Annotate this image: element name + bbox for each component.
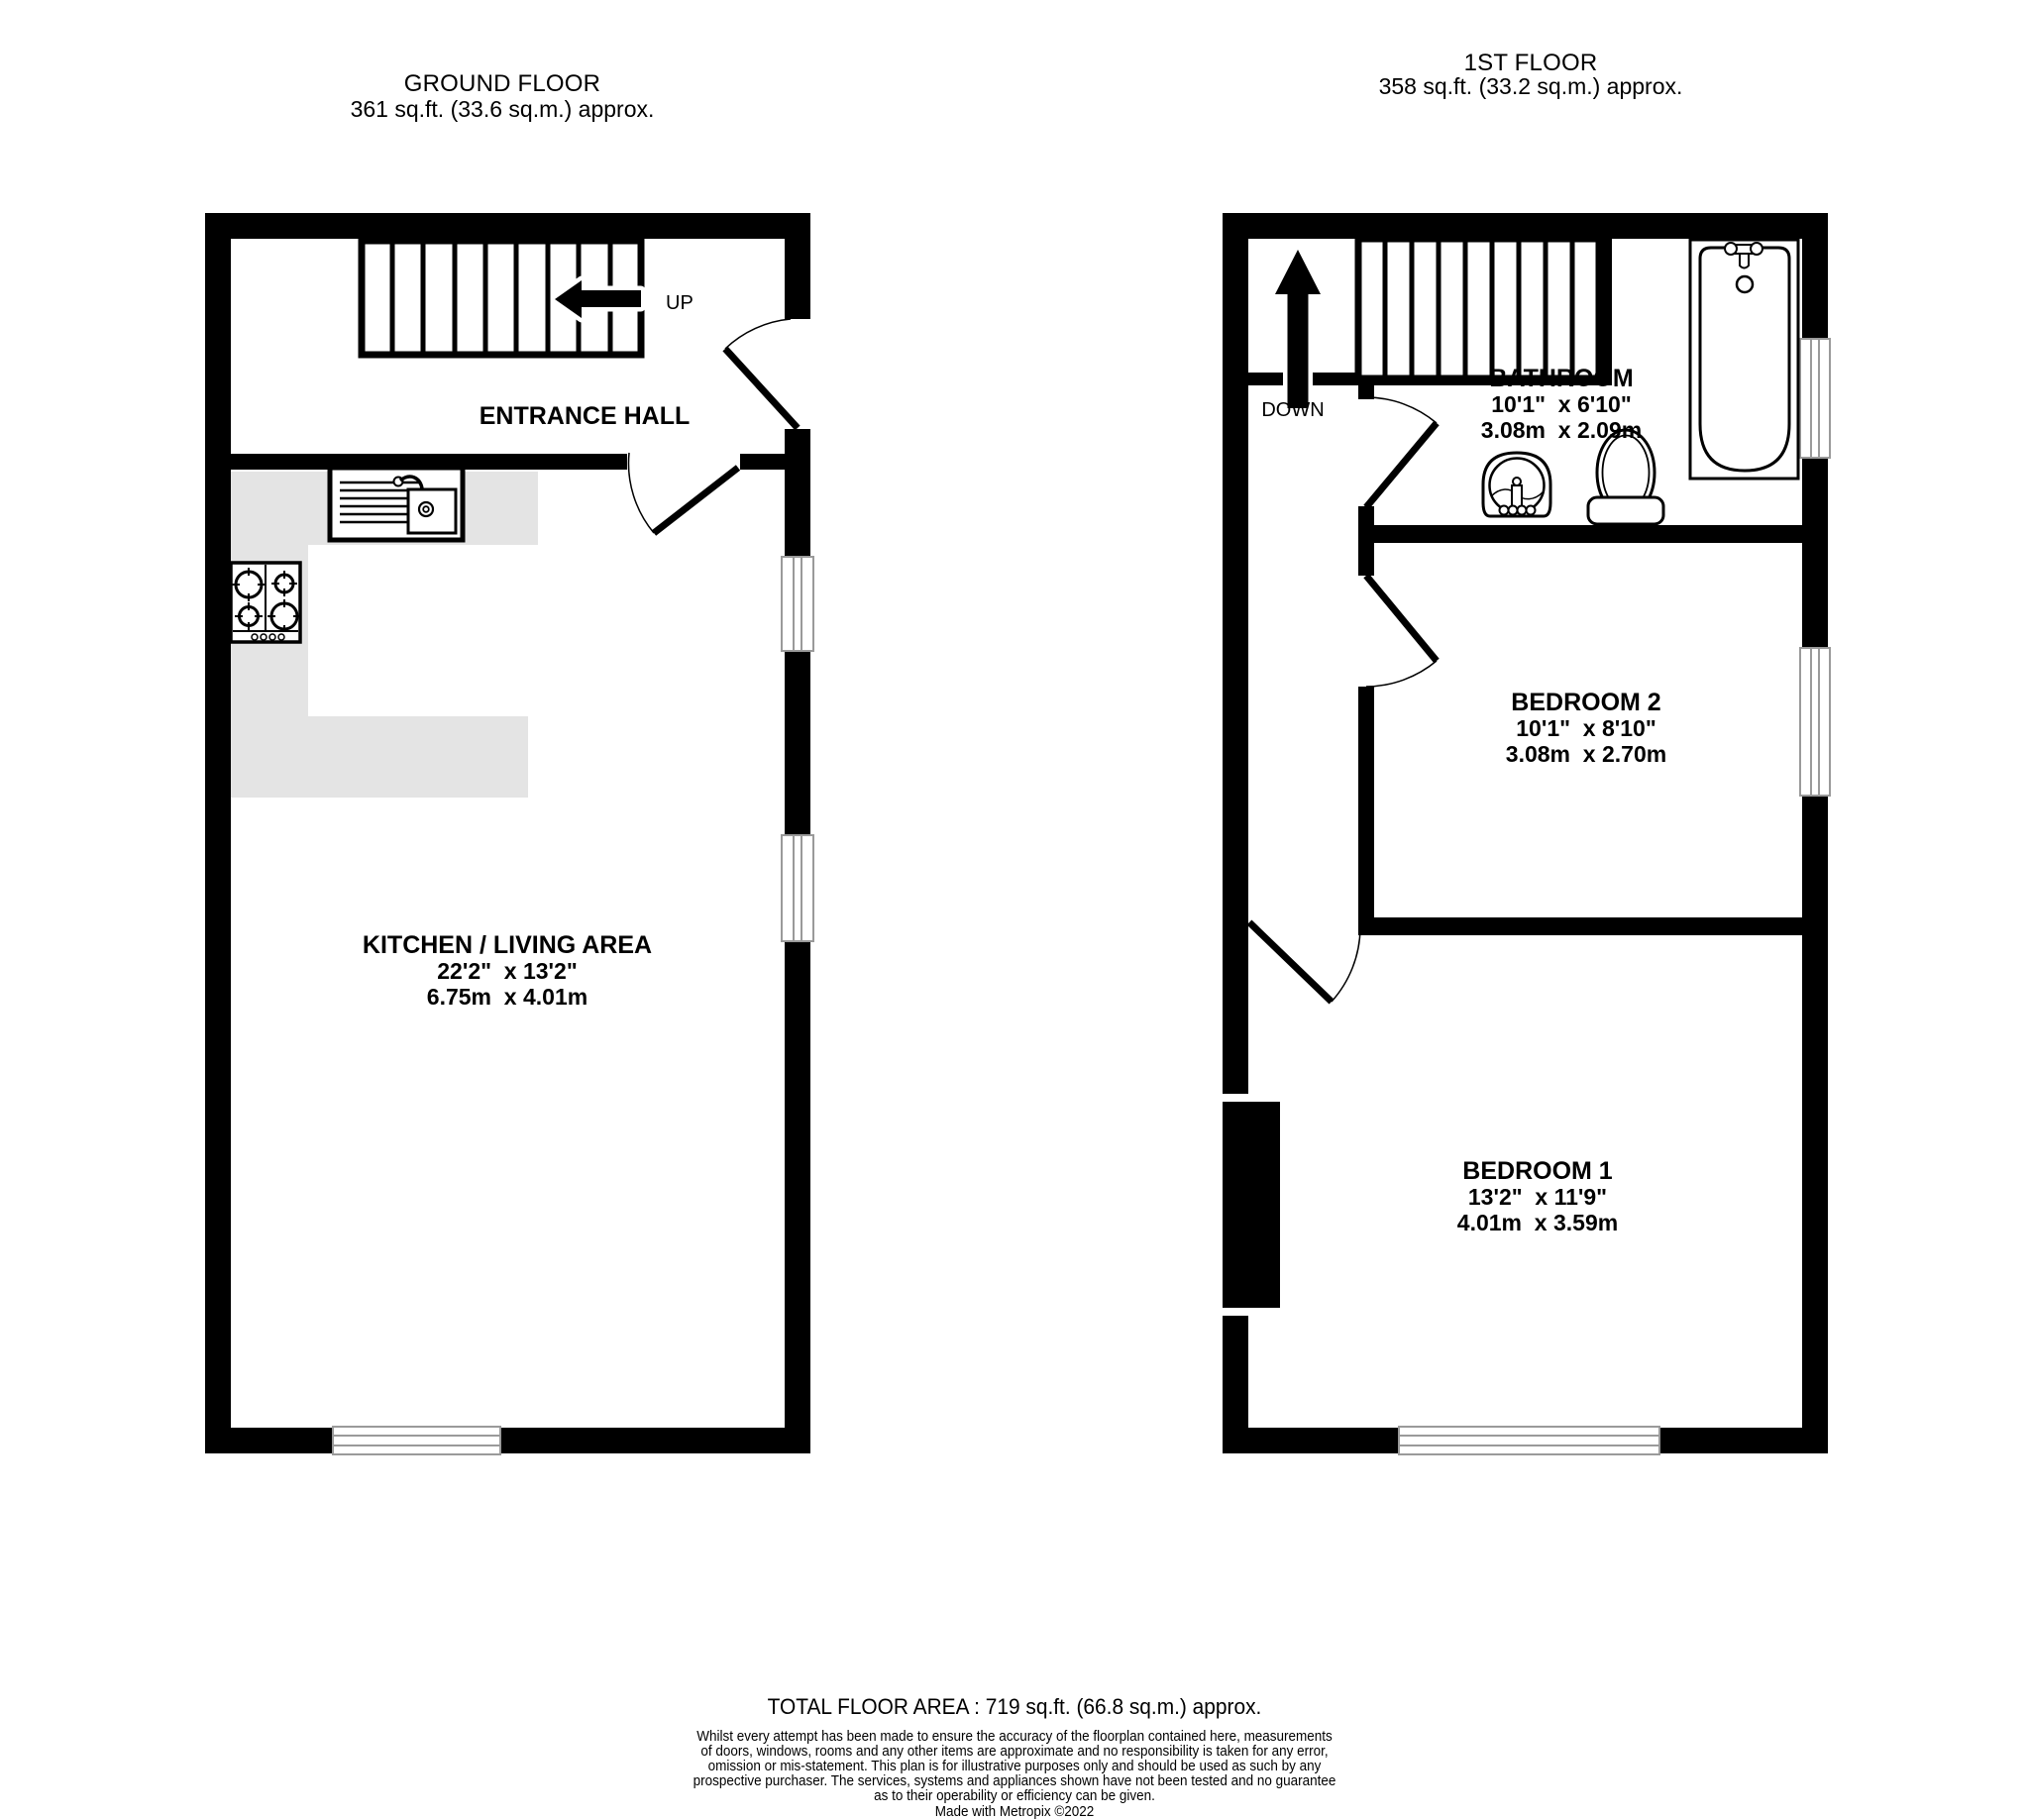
basin-icon [1483, 453, 1550, 516]
ground-floor-title: GROUND FLOOR [404, 70, 600, 97]
ground-floor-plan: GROUND FLOOR 361 sq.ft. (33.6 sq.m.) app… [205, 70, 813, 1454]
bathroom-label: BATHROOM [1489, 365, 1633, 392]
hob-icon [231, 563, 301, 642]
window-bottom-first [1399, 1427, 1659, 1454]
sink-icon [330, 468, 463, 540]
bathroom-door [1366, 397, 1437, 507]
bedroom1-label: BEDROOM 1 [1462, 1157, 1613, 1185]
up-label: UP [666, 292, 694, 314]
entrance-hall-label: ENTRANCE HALL [480, 402, 691, 430]
bedroom2-dims-imperial: 10'1" x 8'10" [1516, 715, 1655, 741]
bath-icon [1690, 240, 1798, 479]
footer: TOTAL FLOOR AREA : 719 sq.ft. (66.8 sq.m… [694, 1695, 1336, 1820]
total-floor-area: TOTAL FLOOR AREA : 719 sq.ft. (66.8 sq.m… [768, 1695, 1262, 1720]
bedroom1-door [1249, 922, 1360, 1002]
staircase-first [1358, 239, 1599, 378]
bedroom1-dims-metric: 4.01m x 3.59m [1457, 1210, 1618, 1235]
bathroom-dims-imperial: 10'1" x 6'10" [1491, 391, 1631, 417]
window-right-2 [782, 835, 813, 941]
kitchen-living-label: KITCHEN / LIVING AREA [363, 931, 652, 959]
floorplan-canvas: GROUND FLOOR 361 sq.ft. (33.6 sq.m.) app… [0, 0, 2029, 1820]
window-bedroom2 [1800, 648, 1830, 796]
kitchen-living-dims-metric: 6.75m x 4.01m [427, 984, 587, 1010]
bedroom2-dims-metric: 3.08m x 2.70m [1506, 741, 1666, 767]
bedroom1-dims-imperial: 13'2" x 11'9" [1468, 1184, 1607, 1210]
first-floor-title: 1ST FLOOR [1464, 50, 1598, 76]
floorplan-page: GROUND FLOOR 361 sq.ft. (33.6 sq.m.) app… [0, 0, 2029, 1820]
kitchen-living-dims-imperial: 22'2" x 13'2" [437, 958, 577, 984]
window-right-1 [782, 557, 813, 651]
ground-floor-walls [205, 213, 810, 1453]
first-floor-area: 358 sq.ft. (33.2 sq.m.) approx. [1379, 73, 1683, 99]
window-bottom-ground [333, 1427, 500, 1454]
ground-floor-area: 361 sq.ft. (33.6 sq.m.) approx. [351, 96, 655, 122]
window-bathroom [1800, 339, 1830, 458]
hall-kitchen-door [628, 453, 738, 533]
bedroom2-label: BEDROOM 2 [1511, 689, 1660, 716]
toilet-icon [1588, 430, 1663, 524]
down-label: DOWN [1261, 399, 1324, 421]
disclaimer-line-5: as to their operability or efficiency ca… [874, 1787, 1155, 1804]
credit-label: Made with Metropix ©2022 [935, 1803, 1095, 1820]
bathroom-dims-metric: 3.08m x 2.09m [1481, 417, 1642, 443]
bedroom2-door [1366, 576, 1437, 687]
front-door [725, 319, 798, 428]
chimney-breast [1246, 1102, 1280, 1308]
first-floor-plan: 1ST FLOOR 358 sq.ft. (33.2 sq.m.) approx… [1223, 50, 1830, 1454]
